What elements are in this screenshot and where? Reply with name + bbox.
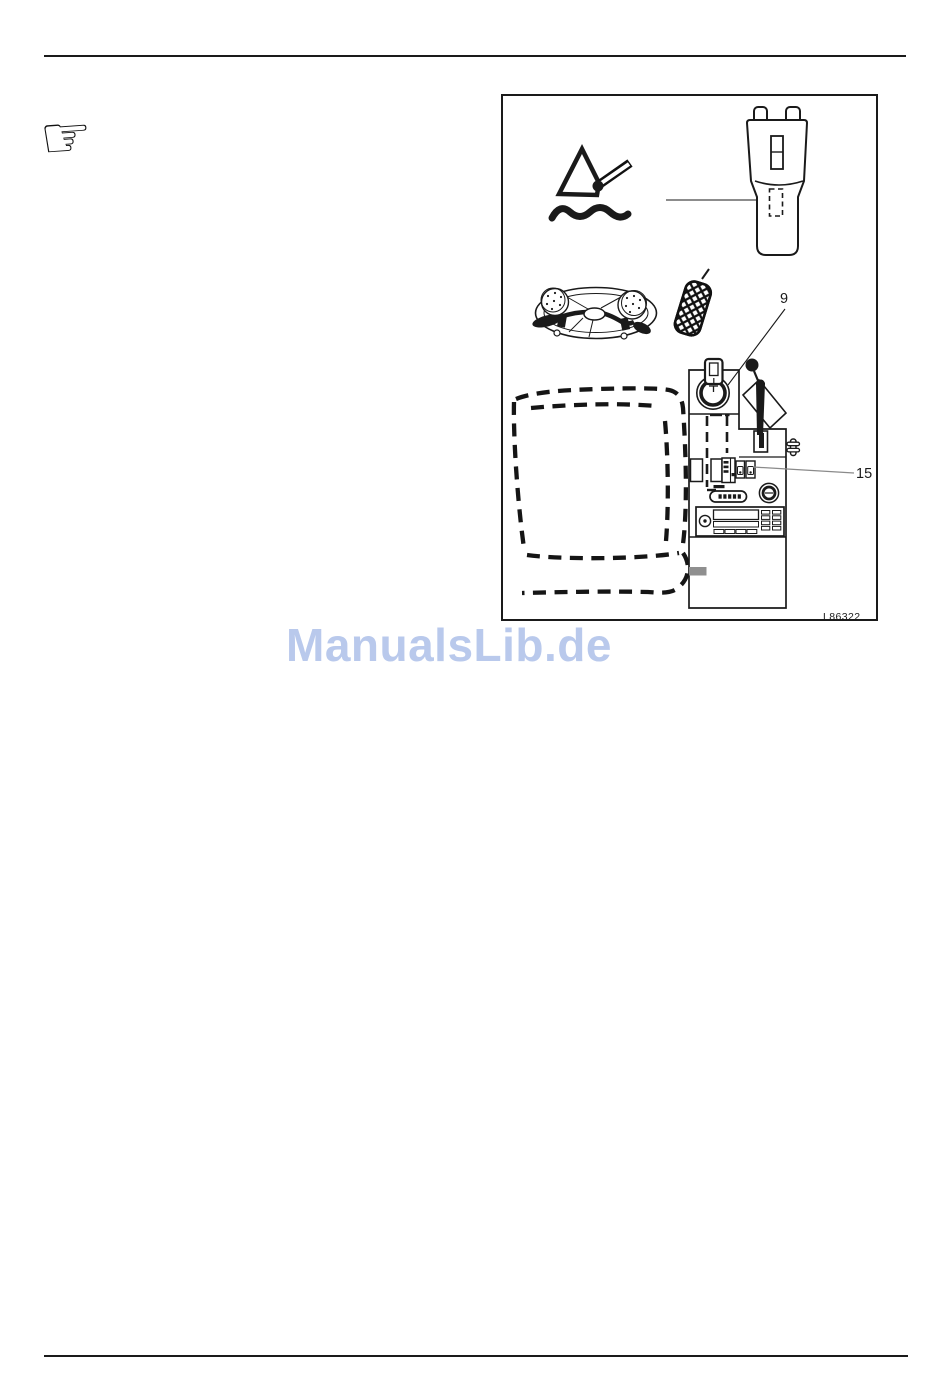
wave-line	[552, 208, 628, 219]
rocker-switch-1	[736, 461, 745, 478]
callout-9-label: 9	[780, 291, 788, 307]
figure-box: 9	[501, 94, 878, 621]
watermark: ManualsLib.de	[286, 618, 612, 672]
top-rule	[44, 55, 906, 57]
left-hand-pad	[541, 288, 569, 316]
hatched-switch	[722, 458, 735, 483]
rocker-switch-2	[746, 461, 755, 478]
steering-wheel	[531, 288, 656, 340]
right-hand-pad	[618, 291, 647, 320]
pointing-hand-icon: ☞	[38, 106, 94, 167]
console-side-tab	[689, 567, 707, 576]
lever-pivot	[593, 181, 604, 192]
bottom-rule	[44, 1355, 908, 1357]
figure-illustration: 9	[503, 96, 876, 619]
headrest	[747, 107, 807, 255]
gear-knob	[746, 359, 759, 372]
ignition-key	[705, 359, 723, 384]
callout-15-label: 15	[856, 466, 872, 482]
cigarette-lighter	[759, 483, 778, 502]
car-radio	[696, 507, 784, 536]
ignition-key-switch	[697, 359, 729, 409]
fastener-screw	[787, 439, 800, 456]
driver-seat-outline	[514, 388, 688, 593]
seat-recline-pictogram	[552, 149, 630, 218]
gear-lever	[746, 359, 760, 384]
accelerator-pedal	[673, 269, 713, 338]
figure-code: L86322	[823, 611, 860, 619]
manual-page: ☞	[0, 0, 950, 1388]
